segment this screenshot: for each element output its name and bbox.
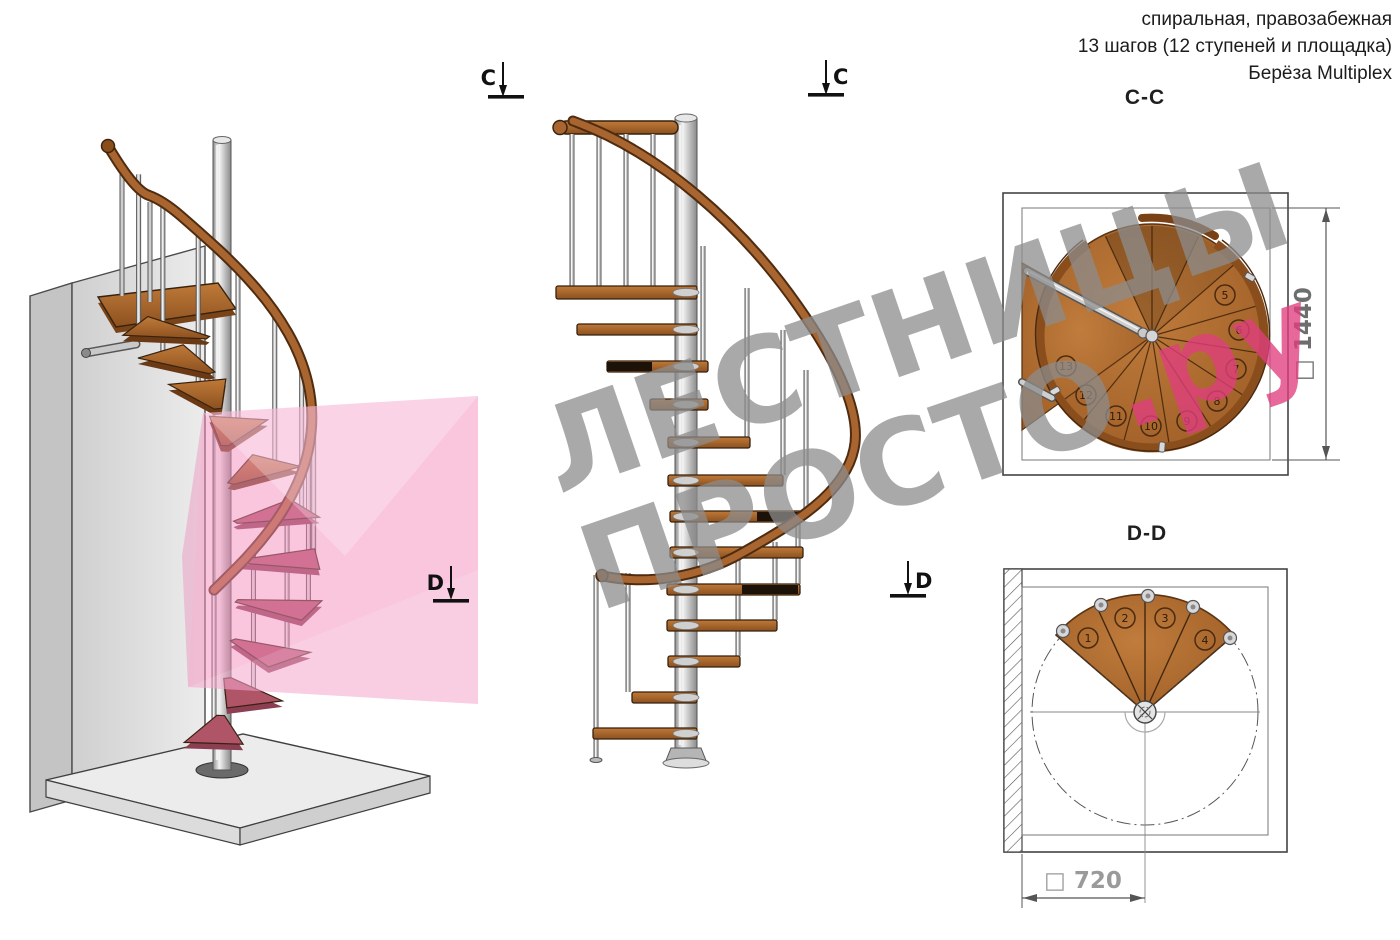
- handrail-end-cap: [102, 140, 115, 153]
- svg-text:8: 8: [1214, 395, 1221, 408]
- isometric-3d-view: [30, 137, 478, 846]
- svg-text:10: 10: [1144, 420, 1158, 433]
- side-elevation-view: [553, 114, 855, 768]
- svg-text:6: 6: [1236, 324, 1243, 337]
- plan-view-cc: 5678910111213 □ 1440: [1003, 193, 1340, 475]
- svg-text:C: C: [833, 65, 848, 89]
- svg-text:1: 1: [1085, 632, 1092, 645]
- svg-text:C: C: [481, 66, 496, 90]
- steps-count-line: 13 шагов (12 ступеней и площадка): [1078, 33, 1392, 60]
- svg-text:2: 2: [1122, 612, 1129, 625]
- svg-text:9: 9: [1184, 415, 1191, 428]
- section-marker-d-right: D: [890, 561, 932, 598]
- material-line: Берёза Multiplex: [1078, 60, 1392, 87]
- step-fan: [1056, 594, 1234, 712]
- svg-text:12: 12: [1079, 389, 1093, 402]
- svg-text:7: 7: [1233, 363, 1240, 376]
- svg-text:11: 11: [1109, 410, 1123, 423]
- svg-text:3: 3: [1162, 612, 1169, 625]
- plan-view-dd: 1234 □ 720: [1004, 569, 1287, 908]
- dimension-1440-label: □ 1440: [1291, 287, 1317, 381]
- svg-text:D: D: [427, 571, 444, 595]
- svg-text:13: 13: [1059, 360, 1073, 373]
- section-marker-c-right: C: [808, 60, 848, 97]
- svg-text:D: D: [915, 569, 932, 593]
- pink-section-planes: [182, 396, 478, 704]
- wall-hatch-band: [1004, 569, 1022, 852]
- svg-text:4: 4: [1202, 634, 1209, 647]
- pole-plan-cc: [1146, 330, 1158, 342]
- section-marker-c-left: C: [481, 62, 524, 99]
- technical-drawing: 5678910111213 □ 1440 1234: [0, 0, 1400, 940]
- title-block: спиральная, правозабежная 13 шагов (12 с…: [1078, 6, 1392, 87]
- staircase-drawing-sheet: 5678910111213 □ 1440 1234: [0, 0, 1400, 940]
- wall-side-face: [30, 283, 72, 812]
- stair-type-line: спиральная, правозабежная: [1078, 6, 1392, 33]
- svg-text:5: 5: [1222, 289, 1229, 302]
- section-title-cc: C-C: [1085, 86, 1205, 110]
- section-title-dd: D-D: [1087, 522, 1207, 546]
- dimension-720-label: □ 720: [1044, 868, 1122, 894]
